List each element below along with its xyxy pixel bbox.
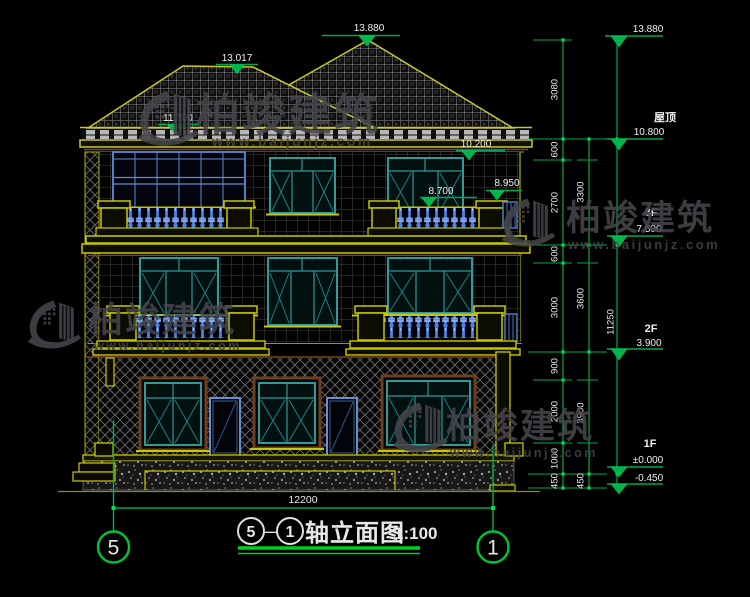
pilaster-stub (106, 358, 114, 386)
left-corbel (95, 443, 113, 456)
window-1f-left (140, 378, 206, 450)
cad-viewport: 13.880 13.017 11.700 10.200 8.950 8.700 (0, 0, 750, 597)
level-value: 8.700 (428, 186, 453, 197)
level-value: ±0.000 (633, 455, 664, 466)
drawing-scale: 1:100 (394, 524, 437, 543)
watermark-right: 柏竣建筑 www.baijunjz.com (502, 198, 720, 252)
level-value: 13.880 (354, 23, 385, 34)
dim-label: 2700 (550, 192, 561, 213)
level-value: 3.900 (636, 338, 661, 349)
title-axis-to: 1 (286, 524, 295, 541)
watermark-brand: 柏竣建筑 (446, 406, 594, 446)
door-1f-left (210, 398, 240, 456)
watermark-left: 柏竣建筑 www.baijunjz.com (28, 300, 242, 353)
watermark-url: www.baijunjz.com (449, 446, 598, 460)
floor-label: 1F (644, 438, 657, 450)
floor-label: 2F (645, 323, 658, 335)
watermark-top: 柏竣建筑 www.baijunjz.com (138, 91, 380, 149)
dim-label-total-height: 11250 (606, 309, 617, 335)
door-1f-right (327, 398, 357, 456)
level-value: 8.950 (494, 178, 519, 189)
level-value: 13.017 (222, 53, 253, 64)
watermark-url: www.baijunjz.com (211, 133, 373, 149)
watermark-brand: 柏竣建筑 (566, 198, 714, 238)
window-1f-center (254, 378, 320, 448)
watermark-url: www.baijunjz.com (567, 237, 720, 252)
dim-label: 450 (550, 473, 561, 489)
title-axis-from: 5 (247, 524, 256, 541)
axis-number: 5 (108, 537, 120, 560)
level-value: 10.800 (634, 127, 665, 138)
floor-label: 屋顶 (654, 111, 676, 124)
floor-band-upper (82, 236, 530, 256)
title-block: 5 — 1 轴立面图 1:100 (238, 518, 437, 554)
watermark-url: www.baijunjz.com (93, 339, 242, 353)
window-3f-center (270, 158, 335, 213)
level-value: 10.200 (461, 139, 492, 150)
axis-number: 1 (487, 537, 499, 560)
dim-label: 3000 (550, 297, 561, 318)
window-2f-center (268, 258, 337, 325)
right-pier-base (490, 485, 515, 491)
overall-width-label: 12200 (288, 494, 317, 506)
window-2f-right (388, 258, 472, 313)
elevation-drawing: 13.880 13.017 11.700 10.200 8.950 8.700 (0, 0, 750, 597)
dim-label: 900 (550, 358, 561, 374)
drawing-title: 轴立面图 (305, 519, 405, 547)
dim-label: 600 (550, 142, 561, 158)
step-upper (79, 463, 115, 472)
level-value: 13.880 (633, 24, 664, 35)
dim-label: 3080 (550, 79, 561, 100)
title-dash: — (264, 524, 277, 539)
dim-label: 3600 (576, 288, 587, 309)
step-lower (73, 472, 115, 481)
downspout-2f-right (505, 314, 517, 342)
watermark-brand: 柏竣建筑 (88, 300, 236, 340)
level-value: -0.450 (635, 473, 664, 484)
dim-label: 600 (550, 246, 561, 262)
sunroom-glazing (113, 152, 245, 208)
dim-label: 450 (576, 473, 587, 489)
